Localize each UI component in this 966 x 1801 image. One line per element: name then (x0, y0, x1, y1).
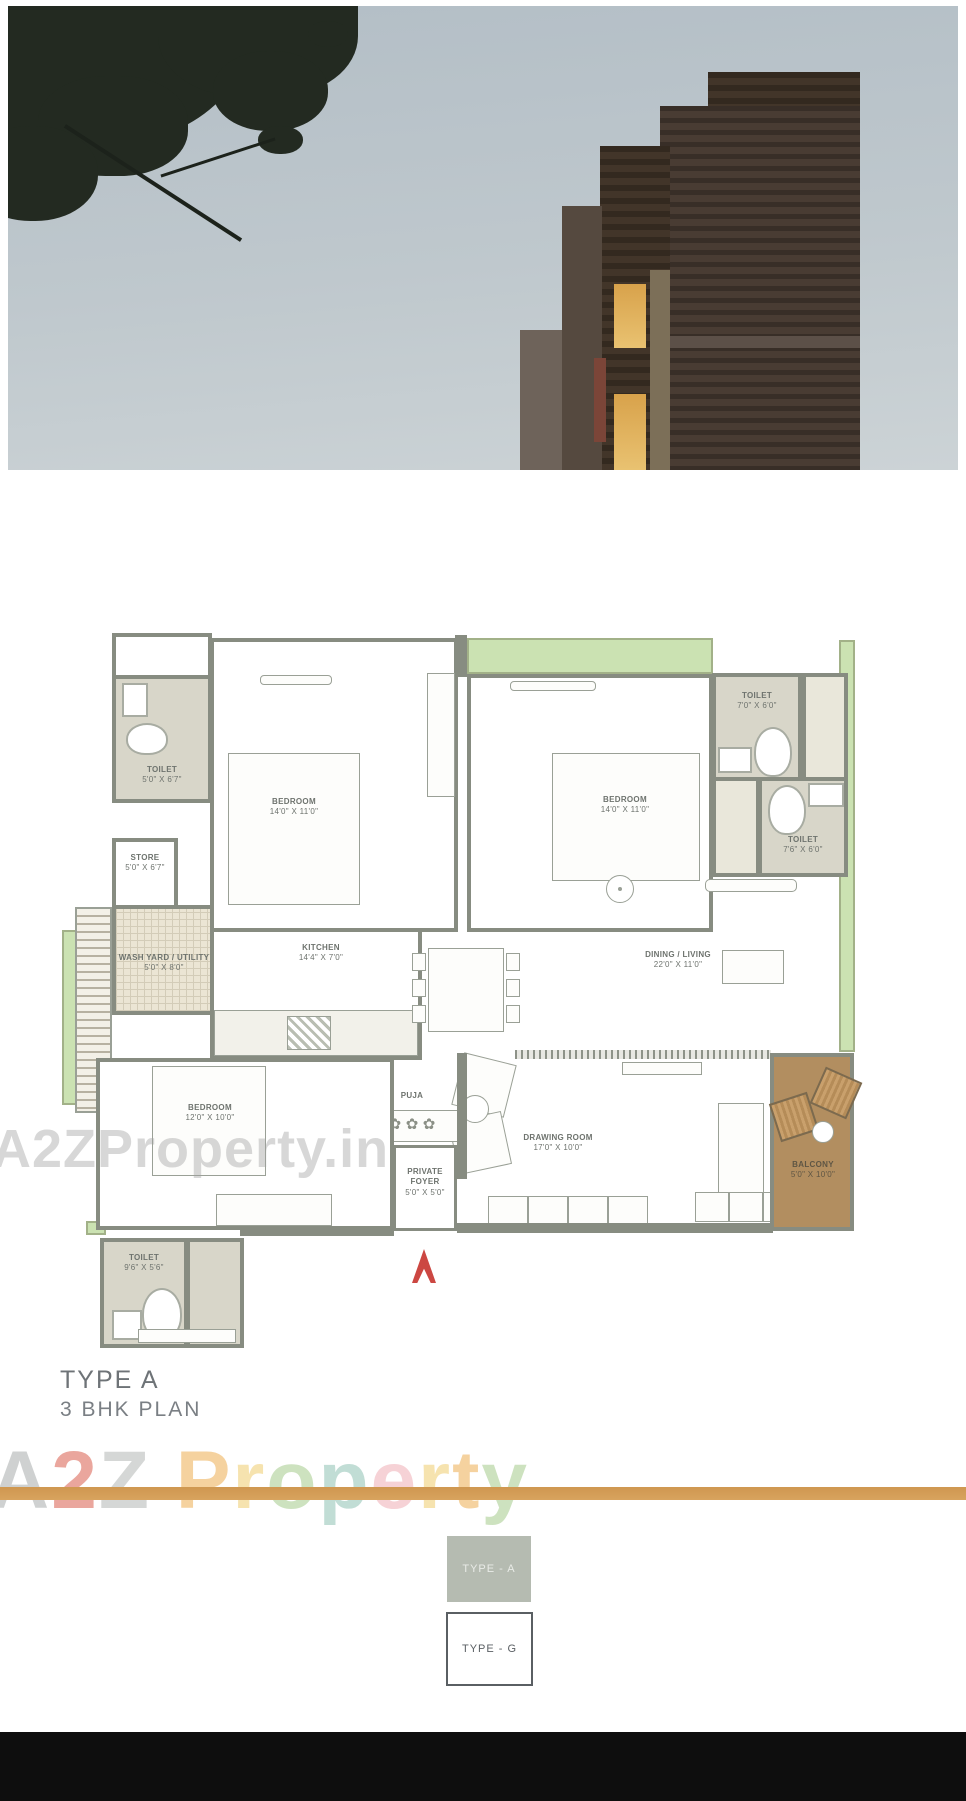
room-label-private-foyer: PRIVATE FOYER 5'0" X 5'0" (396, 1167, 454, 1198)
type-g-button[interactable]: TYPE - G (446, 1612, 533, 1686)
room-label-dining-living: DINING / LIVING 22'0" X 11'0" (630, 950, 726, 971)
page: TOILET 5'0" X 6'7" STORE 5'0" X 6'7" WAS… (0, 0, 966, 1801)
watermark-letter: P (176, 1435, 233, 1526)
room-label-kitchen: KITCHEN 14'4" X 7'0" (278, 943, 364, 964)
watermark-letter: p (318, 1435, 370, 1526)
watermark-letter: 2 (51, 1435, 99, 1526)
room-label-store: STORE 5'0" X 6'7" (114, 853, 176, 874)
building-photo (8, 6, 958, 470)
dining-chair (506, 953, 520, 971)
room-label-puja: PUJA (390, 1091, 434, 1101)
toilet-ledge (138, 1329, 236, 1343)
tv-console (622, 1062, 702, 1075)
watermark-letter: t (452, 1435, 481, 1526)
stove-icon (287, 1016, 331, 1050)
divider-rule (0, 1487, 966, 1500)
wall (457, 1053, 467, 1179)
wardrobe (427, 673, 455, 797)
wall (457, 1223, 773, 1233)
shelf (510, 681, 596, 691)
dining-chair (412, 953, 426, 971)
green-strip-top-right (467, 638, 713, 674)
room-duct (802, 673, 848, 781)
room-label-balcony: BALCONY 5'0" X 10'0" (782, 1160, 844, 1181)
watermark-letter: r (232, 1435, 266, 1526)
wall (240, 1226, 394, 1236)
watermark-plan: A2ZProperty.in (0, 1118, 389, 1180)
lit-window (614, 284, 646, 348)
room-label-bedroom-2: BEDROOM 14'0" X 11'0" (560, 795, 690, 816)
lit-window (614, 394, 646, 470)
room-passage (712, 777, 760, 877)
watermark-footer: A2Z Property (0, 1434, 529, 1528)
room-label-bedroom-1: BEDROOM 14'0" X 11'0" (236, 797, 352, 818)
dining-table (428, 948, 504, 1032)
room-label-wash-yard: WASH YARD / UTILITY 5'0" X 8'0" (116, 953, 212, 974)
balcony-table (812, 1121, 834, 1143)
tree-foliage (308, 21, 348, 47)
toilet-wc-icon (126, 723, 168, 755)
room-label-toilet-tr1: TOILET 7'0" X 6'0" (718, 691, 796, 712)
sofa (718, 1103, 764, 1193)
watermark-letter: Z (99, 1435, 151, 1526)
building-accent-strip (594, 358, 606, 442)
watermark-letter: e (371, 1435, 419, 1526)
watermark-letter (151, 1435, 176, 1526)
building-tower-main (660, 106, 860, 470)
room-label-toilet-bl: TOILET 9'6" X 5'6" (108, 1253, 180, 1274)
entrance-arrow-icon (412, 1249, 436, 1283)
wardrobe (216, 1194, 332, 1226)
watermark-letter: A (0, 1435, 51, 1526)
toilet-wc-icon (754, 727, 792, 777)
dining-chair (412, 1005, 426, 1023)
building-lower-block (520, 330, 562, 470)
dining-chair (506, 1005, 520, 1023)
watermark-letter: y (481, 1435, 529, 1526)
room-label-toilet-tl: TOILET 5'0" X 6'7" (116, 765, 208, 786)
shelf (260, 675, 332, 685)
ceiling-fan-icon (606, 875, 634, 903)
dining-chair (412, 979, 426, 997)
plan-subtitle: 3 BHK PLAN (60, 1398, 201, 1422)
flower-icon: ✿ (423, 1116, 436, 1133)
type-a-button[interactable]: TYPE - A (447, 1536, 531, 1602)
toilet-wc-icon (768, 785, 806, 835)
console (705, 879, 797, 892)
floor-plan: TOILET 5'0" X 6'7" STORE 5'0" X 6'7" WAS… (60, 555, 860, 1365)
tv-wall (515, 1050, 771, 1059)
dining-chair (506, 979, 520, 997)
washbasin-icon (808, 783, 844, 807)
flower-icon: ✿ (406, 1116, 419, 1133)
room-label-toilet-tr2: TOILET 7'6" X 6'0" (764, 835, 842, 856)
footer-bar (0, 1732, 966, 1801)
washbasin-icon (122, 683, 148, 717)
sofa (488, 1196, 648, 1226)
washbasin-icon (718, 747, 752, 773)
plan-type-title: TYPE A (60, 1366, 160, 1395)
watermark-letter: r (418, 1435, 452, 1526)
bed (228, 753, 360, 905)
room-label-drawing-room: DRAWING ROOM 17'0" X 10'0" (508, 1133, 608, 1154)
sideboard (722, 950, 784, 984)
watermark-letter: o (266, 1435, 318, 1526)
bed (552, 753, 700, 881)
building-band (670, 336, 860, 348)
building-light-column (650, 270, 670, 470)
room-lobby (112, 633, 212, 681)
tree-foliage (213, 51, 328, 131)
